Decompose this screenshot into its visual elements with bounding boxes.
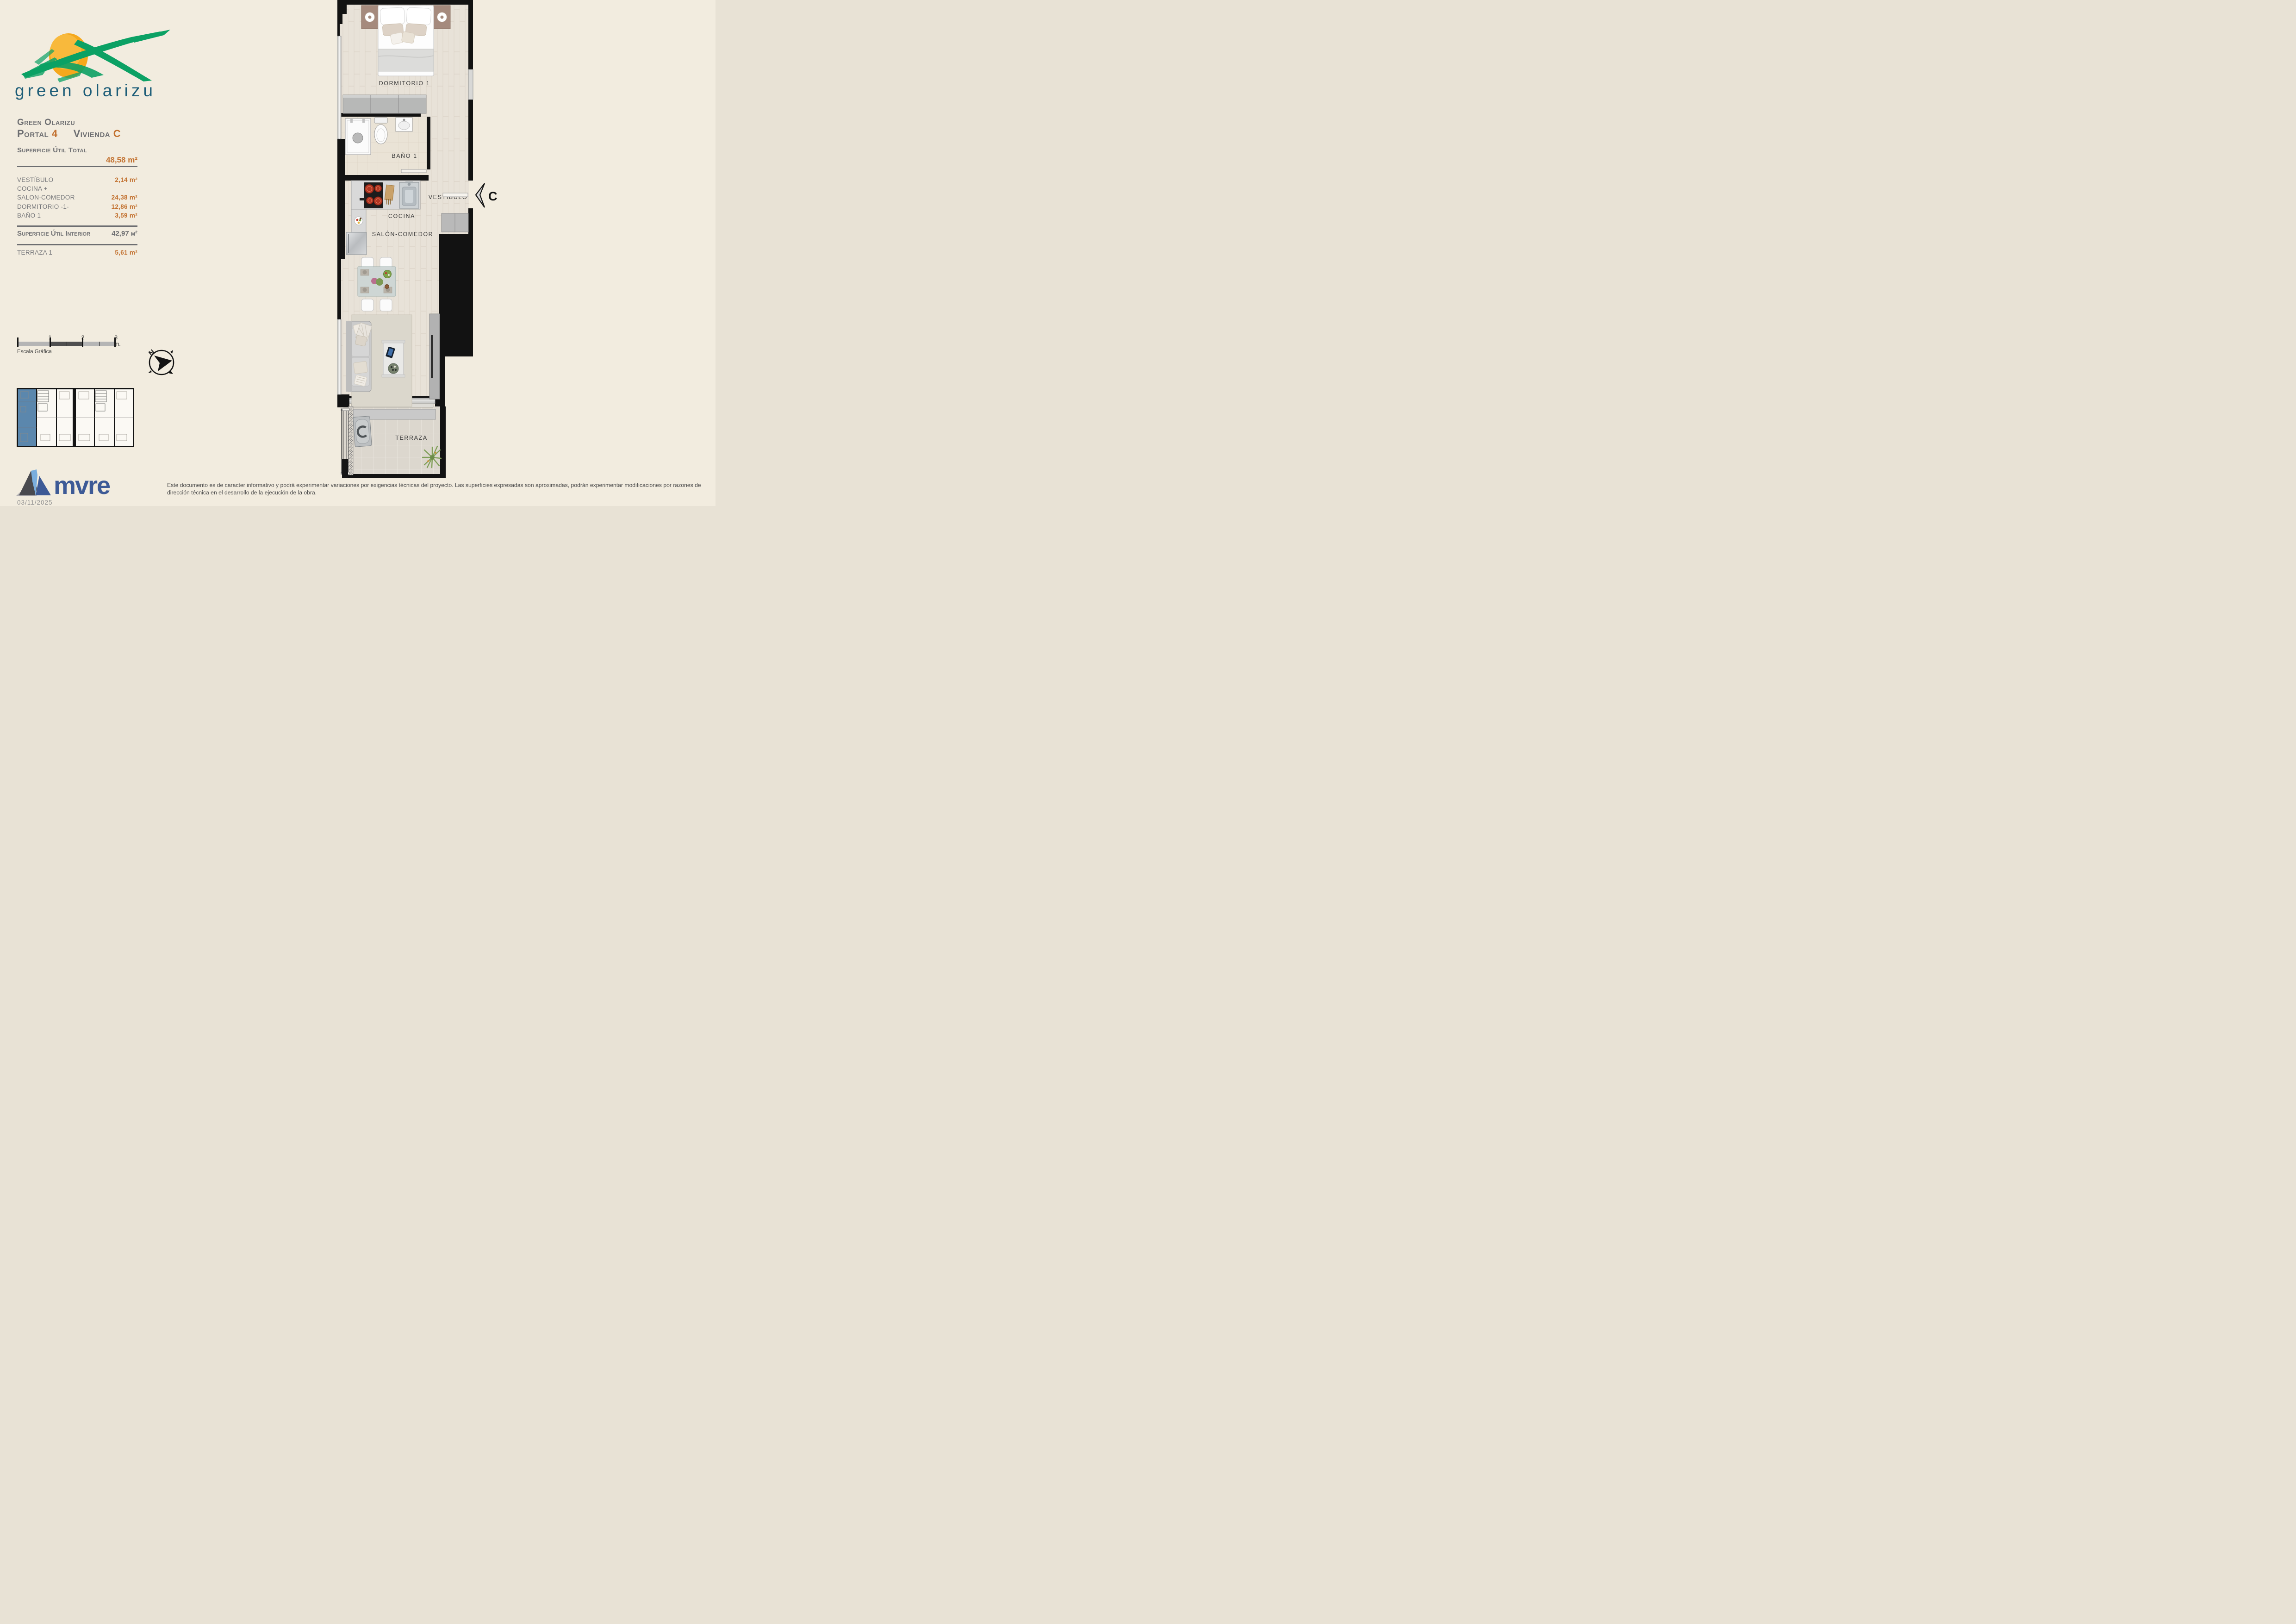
row-label: COCINA + — [17, 185, 48, 192]
tv-screen — [431, 335, 433, 378]
sofa — [346, 321, 372, 392]
table-row: SALON-COMEDOR 24,38 m² — [17, 194, 137, 203]
faucet-icon — [408, 183, 411, 186]
interior-value: 42,97 m² — [112, 230, 137, 237]
legal-disclaimer: Este documento es de caracter informativ… — [167, 482, 715, 496]
room-label-cocina: COCINA — [388, 213, 415, 219]
room-label-bano: BAÑO 1 — [392, 153, 417, 159]
compass-arrow — [154, 356, 172, 371]
row-label: VESTÍBULO — [17, 176, 53, 183]
bed-blanket — [378, 49, 434, 71]
green-olarizu-logo: green olarizu — [13, 19, 176, 102]
project-title: Green Olarizu — [17, 118, 75, 128]
entry-marker-letter: C — [488, 189, 498, 203]
toilet-bowl — [374, 125, 387, 144]
row-value: 12,86 m² — [112, 203, 137, 210]
divider — [17, 244, 137, 245]
table-row: BAÑO 1 3,59 m² — [17, 212, 137, 221]
portal-number: 4 — [52, 128, 58, 139]
shower-drain-icon — [353, 133, 363, 143]
plant-center — [430, 455, 435, 460]
row-value: 24,38 m² — [112, 194, 137, 201]
row-label: BAÑO 1 — [17, 212, 41, 219]
unit-title: Portal 4 Vivienda C — [17, 128, 121, 140]
vivienda-label: Vivienda — [74, 128, 111, 139]
bedroom-window-right — [468, 69, 473, 100]
north-compass-icon: N — [146, 346, 177, 377]
surface-terraza-row: TERRAZA 1 5,61 m² — [17, 249, 137, 256]
row-label: SALON-COMEDOR — [17, 194, 75, 201]
terraza-value: 5,61 m² — [115, 249, 137, 256]
row-value: 3,59 m² — [115, 212, 137, 219]
salad-plate — [384, 270, 392, 278]
logo-wordmark: green olarizu — [15, 81, 156, 100]
floorplan-document-page: green olarizu Green Olarizu Portal 4 Viv… — [0, 0, 716, 506]
graphic-scale: 1 2 3 m. Escala Gráfica — [17, 334, 116, 356]
table-row: VESTÍBULO 2,14 m² — [17, 176, 137, 185]
ac-unit — [353, 416, 372, 447]
surface-total-label: Superficie Útil Total — [17, 146, 137, 154]
mvre-wordmark: mvre — [54, 472, 110, 498]
party-wall-hatch — [348, 406, 353, 475]
tv-unit — [429, 314, 440, 399]
apartment-floor-plan: DORMITORIO 1 BAÑO 1 — [337, 0, 504, 478]
row-label: DORMITORIO -1- — [17, 203, 69, 210]
divider — [17, 225, 137, 227]
divider — [17, 166, 137, 167]
toilet-tank — [374, 118, 387, 123]
vivienda-group: Vivienda C — [74, 128, 121, 140]
terrace-railing — [341, 408, 349, 478]
surface-rows: VESTÍBULO 2,14 m² COCINA + SALON-COMEDOR… — [17, 176, 137, 221]
table-row: DORMITORIO -1- 12,86 m² — [17, 203, 137, 212]
surface-interior-row: Superficie Útil Interior 42,97 m² — [17, 230, 137, 237]
entry-arrow-icon — [476, 183, 485, 207]
decor-bowl — [388, 363, 398, 374]
terraza-label: TERRAZA 1 — [17, 249, 52, 256]
vivienda-letter: C — [113, 128, 121, 139]
room-label-terraza: TERRAZA — [395, 435, 428, 441]
coffee-table — [382, 340, 405, 377]
surface-total-block: Superficie Útil Total 48,58 m² — [17, 146, 137, 165]
scale-bar — [17, 342, 116, 346]
document-date: 03/11/2025 — [17, 499, 53, 506]
building-key-plan — [17, 388, 134, 447]
entry-marker: C — [476, 183, 498, 207]
portal-group: Portal 4 — [17, 128, 58, 140]
refrigerator — [346, 232, 367, 255]
room-label-dormitorio: DORMITORIO 1 — [379, 80, 430, 87]
interior-label: Superficie Útil Interior — [17, 230, 90, 237]
bathroom-door — [401, 169, 426, 173]
room-label-salon: SALÓN-COMEDOR — [372, 231, 434, 237]
mvre-developer-logo: mvre — [16, 469, 125, 498]
scale-caption: Escala Gráfica — [17, 349, 52, 355]
cutting-board — [385, 185, 394, 200]
mvre-mountain-icon — [16, 469, 51, 496]
row-value: 2,14 m² — [115, 176, 137, 183]
terrace-mat — [342, 459, 348, 478]
portal-label: Portal — [17, 128, 49, 139]
entry-door — [443, 193, 468, 197]
table-row: COCINA + — [17, 185, 137, 194]
pan-handle — [360, 198, 365, 200]
logo-brush-x-icon — [21, 30, 170, 82]
surface-total-value: 48,58 m² — [17, 156, 137, 165]
